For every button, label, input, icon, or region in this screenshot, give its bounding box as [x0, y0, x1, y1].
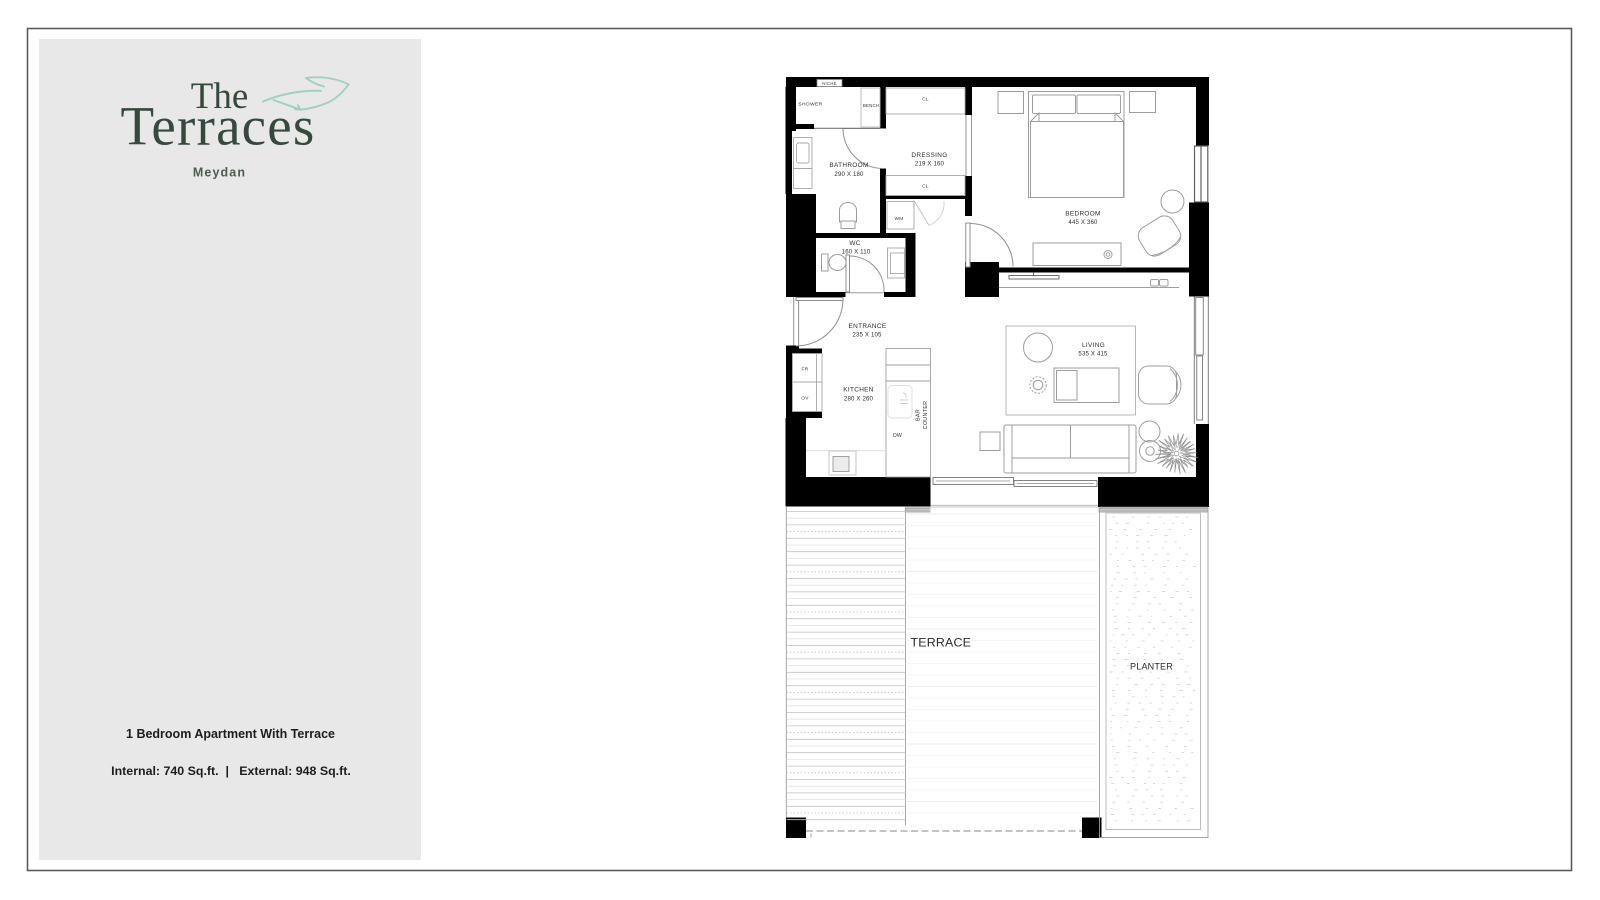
- svg-text:PLANTER: PLANTER: [1130, 662, 1173, 672]
- svg-text:BAR: BAR: [916, 409, 922, 421]
- svg-text:CL: CL: [922, 184, 929, 190]
- svg-text:BATHROOM: BATHROOM: [829, 162, 868, 169]
- svg-text:COUNTER: COUNTER: [923, 401, 929, 430]
- svg-text:Internal: 740 Sq.ft. | Exte: Internal: 740 Sq.ft. | External: 948 Sq.…: [111, 764, 351, 778]
- svg-text:BENCH: BENCH: [863, 103, 879, 108]
- svg-text:OV: OV: [801, 396, 809, 402]
- svg-text:160 X 110: 160 X 110: [842, 249, 871, 256]
- svg-text:280 X 260: 280 X 260: [844, 396, 874, 403]
- svg-text:LIVING: LIVING: [1082, 342, 1105, 349]
- svg-text:DRESSING: DRESSING: [911, 152, 947, 159]
- svg-text:DW: DW: [893, 433, 902, 439]
- svg-text:Terraces: Terraces: [120, 96, 315, 157]
- svg-text:CL: CL: [922, 97, 929, 103]
- svg-text:290 X 180: 290 X 180: [834, 171, 864, 178]
- svg-text:445 X 360: 445 X 360: [1068, 219, 1098, 226]
- svg-text:TERRACE: TERRACE: [911, 636, 972, 650]
- svg-text:BEDROOM: BEDROOM: [1065, 211, 1100, 218]
- svg-text:235 X 105: 235 X 105: [852, 332, 882, 339]
- svg-text:535 X 415: 535 X 415: [1078, 351, 1108, 358]
- svg-text:1 Bedroom Apartment With Terra: 1 Bedroom Apartment With Terrace: [126, 727, 335, 741]
- svg-text:WC: WC: [849, 240, 860, 247]
- svg-text:SHOWER: SHOWER: [798, 102, 822, 108]
- svg-text:Meydan: Meydan: [193, 166, 246, 180]
- svg-text:FR: FR: [802, 367, 809, 373]
- svg-text:219 X 160: 219 X 160: [915, 161, 945, 168]
- svg-text:KITCHEN: KITCHEN: [843, 387, 874, 394]
- svg-text:WM: WM: [894, 216, 903, 222]
- svg-text:NICHE: NICHE: [822, 81, 837, 86]
- svg-text:ENTRANCE: ENTRANCE: [849, 323, 887, 330]
